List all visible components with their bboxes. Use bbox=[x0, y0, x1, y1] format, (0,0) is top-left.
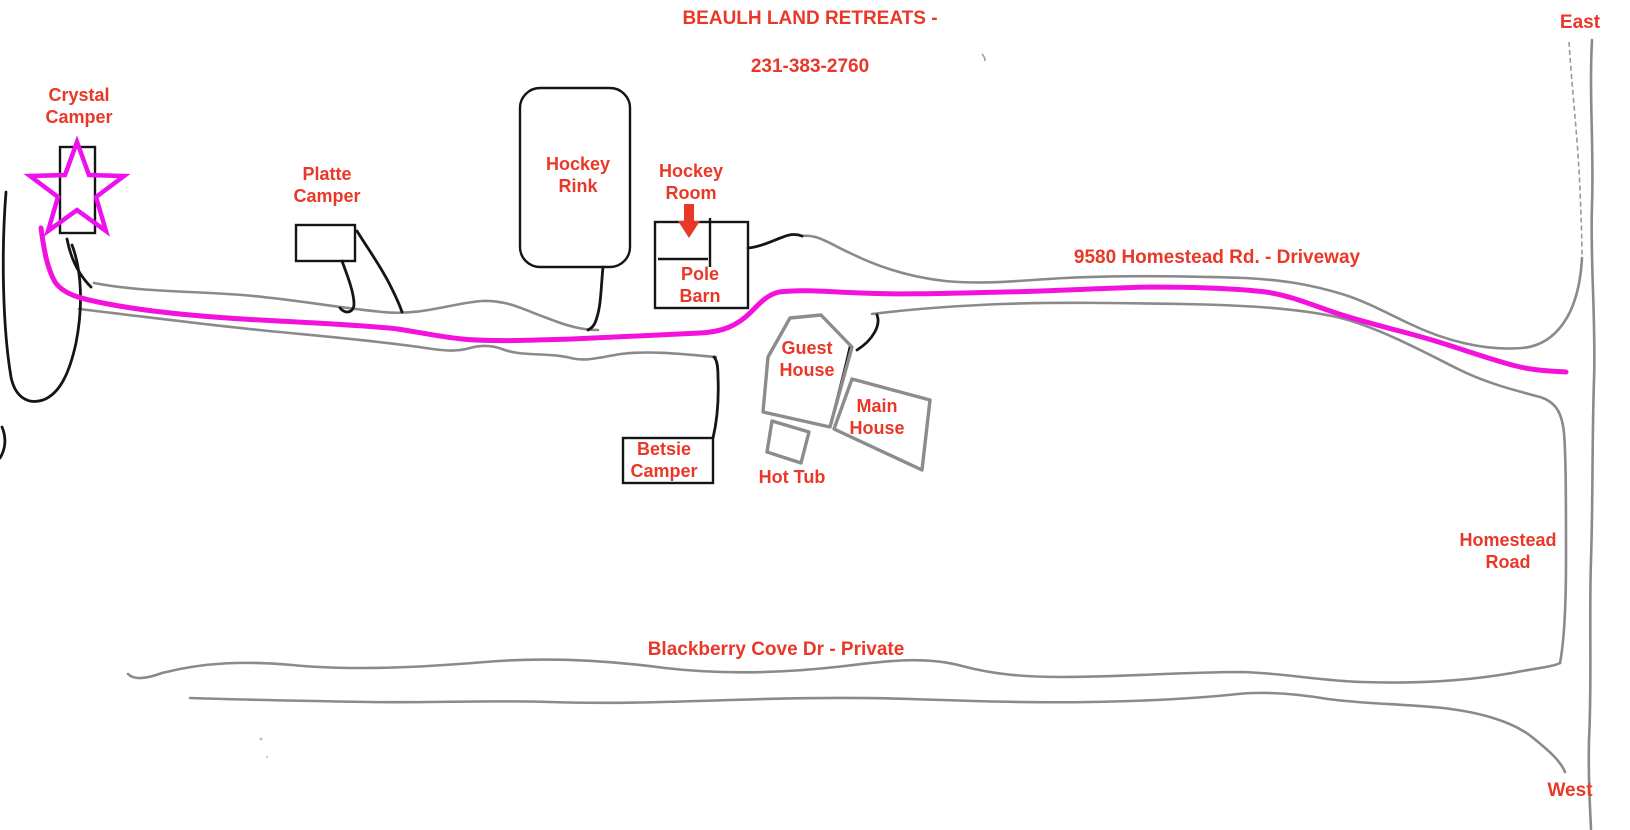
west-boundary-line bbox=[3, 192, 80, 401]
guest-house-access-line bbox=[857, 315, 878, 350]
scan-speck-dot-1 bbox=[260, 738, 263, 741]
label-platte-camper: Platte Camper bbox=[293, 163, 360, 207]
map-canvas bbox=[0, 0, 1630, 830]
label-crystal-camper: Crystal Camper bbox=[45, 84, 112, 128]
driveway-bottom-west-line bbox=[79, 309, 716, 359]
label-betsie-camper: Betsie Camper bbox=[630, 438, 697, 482]
pole-barn-access-line bbox=[748, 235, 802, 248]
label-homestead-road: Homestead Road bbox=[1459, 529, 1556, 573]
property-map: BEAULH LAND RETREATS - 231-383-2760 East… bbox=[0, 0, 1630, 830]
crystal-camper-star bbox=[30, 142, 124, 231]
label-east: East bbox=[1560, 11, 1600, 35]
platte-access-line-2 bbox=[357, 231, 402, 312]
label-west: West bbox=[1547, 779, 1592, 803]
ink-lines bbox=[0, 88, 878, 483]
map-title-line1: BEAULH LAND RETREATS - bbox=[682, 8, 937, 29]
driveway-bottom-east-line bbox=[872, 303, 1566, 663]
homestead-road-right-line bbox=[1589, 40, 1595, 829]
map-title: BEAULH LAND RETREATS - 231-383-2760 bbox=[682, 7, 937, 79]
platte-access-line-1 bbox=[340, 261, 354, 312]
label-guest-house: Guest House bbox=[779, 337, 834, 381]
roads bbox=[79, 40, 1594, 829]
left-edge-tick bbox=[0, 427, 5, 458]
label-hot-tub: Hot Tub bbox=[759, 466, 826, 488]
label-hockey-rink: Hockey Rink bbox=[546, 153, 610, 197]
blackberry-top-line bbox=[128, 660, 1560, 683]
homestead-road-upper-left-line bbox=[1569, 42, 1582, 258]
scan-speck-line bbox=[982, 54, 985, 61]
label-hockey-room: Hockey Room bbox=[659, 160, 723, 204]
map-title-line2: 231-383-2760 bbox=[751, 56, 869, 77]
blackberry-bottom-line bbox=[190, 693, 1565, 772]
hot-tub-outline bbox=[767, 421, 809, 463]
label-main-house: Main House bbox=[849, 395, 904, 439]
label-pole-barn: Pole Barn bbox=[679, 263, 720, 307]
hockey-room-arrow-icon bbox=[678, 204, 700, 238]
label-blackberry-cove: Blackberry Cove Dr - Private bbox=[648, 638, 905, 662]
scan-speck-dot-2 bbox=[266, 756, 268, 758]
betsie-access-line bbox=[713, 357, 718, 438]
platte-camper-box bbox=[296, 225, 355, 261]
rink-access-line bbox=[588, 267, 603, 330]
label-driveway: 9580 Homestead Rd. - Driveway bbox=[1074, 246, 1360, 270]
